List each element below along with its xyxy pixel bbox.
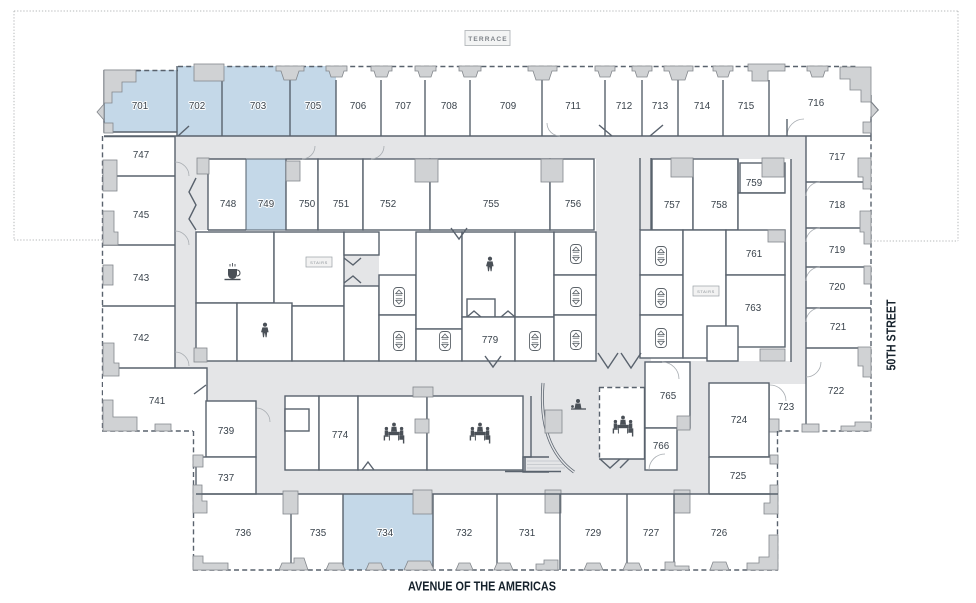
svg-text:729: 729 <box>585 528 601 539</box>
svg-text:736: 736 <box>235 528 252 539</box>
svg-text:765: 765 <box>660 391 677 402</box>
svg-text:759: 759 <box>746 178 762 189</box>
svg-text:711: 711 <box>565 101 581 112</box>
svg-text:758: 758 <box>711 200 728 211</box>
svg-text:720: 720 <box>829 282 846 293</box>
svg-text:774: 774 <box>332 430 349 441</box>
svg-text:743: 743 <box>133 273 150 284</box>
svg-text:732: 732 <box>456 528 472 539</box>
svg-text:779: 779 <box>482 335 498 346</box>
svg-text:717: 717 <box>829 152 845 163</box>
svg-text:708: 708 <box>441 101 458 112</box>
svg-text:757: 757 <box>664 200 680 211</box>
svg-text:734: 734 <box>377 528 394 539</box>
svg-text:719: 719 <box>829 245 845 256</box>
svg-text:751: 751 <box>333 199 349 210</box>
svg-text:707: 707 <box>395 101 411 112</box>
svg-text:747: 747 <box>133 150 149 161</box>
svg-text:709: 709 <box>500 101 516 112</box>
svg-text:752: 752 <box>380 199 396 210</box>
svg-text:721: 721 <box>830 322 846 333</box>
svg-text:739: 739 <box>218 426 234 437</box>
svg-text:716: 716 <box>808 98 825 109</box>
svg-text:727: 727 <box>643 528 659 539</box>
svg-text:724: 724 <box>731 415 748 426</box>
svg-text:TERRACE: TERRACE <box>468 36 508 43</box>
svg-text:725: 725 <box>730 471 747 482</box>
svg-text:723: 723 <box>778 402 795 413</box>
svg-text:AVENUE OF THE AMERICAS: AVENUE OF THE AMERICAS <box>408 579 556 594</box>
svg-text:703: 703 <box>250 101 267 112</box>
svg-text:761: 761 <box>746 249 762 260</box>
svg-text:755: 755 <box>483 199 500 210</box>
svg-text:756: 756 <box>565 199 582 210</box>
svg-text:748: 748 <box>220 199 237 210</box>
svg-text:705: 705 <box>305 101 322 112</box>
svg-text:712: 712 <box>616 101 632 112</box>
svg-text:714: 714 <box>694 101 711 112</box>
svg-text:702: 702 <box>189 101 205 112</box>
svg-text:742: 742 <box>133 333 149 344</box>
svg-text:718: 718 <box>829 200 846 211</box>
svg-text:726: 726 <box>711 528 728 539</box>
svg-text:731: 731 <box>519 528 535 539</box>
svg-text:706: 706 <box>350 101 367 112</box>
svg-text:737: 737 <box>218 473 234 484</box>
svg-text:713: 713 <box>652 101 669 112</box>
svg-text:715: 715 <box>738 101 755 112</box>
svg-text:750: 750 <box>299 199 316 210</box>
svg-text:763: 763 <box>745 303 762 314</box>
svg-text:741: 741 <box>149 396 165 407</box>
svg-text:722: 722 <box>828 386 844 397</box>
svg-text:749: 749 <box>258 199 274 210</box>
svg-text:766: 766 <box>653 441 670 452</box>
svg-text:735: 735 <box>310 528 327 539</box>
svg-text:745: 745 <box>133 210 150 221</box>
svg-text:50TH STREET: 50TH STREET <box>884 300 899 371</box>
svg-text:701: 701 <box>132 101 148 112</box>
